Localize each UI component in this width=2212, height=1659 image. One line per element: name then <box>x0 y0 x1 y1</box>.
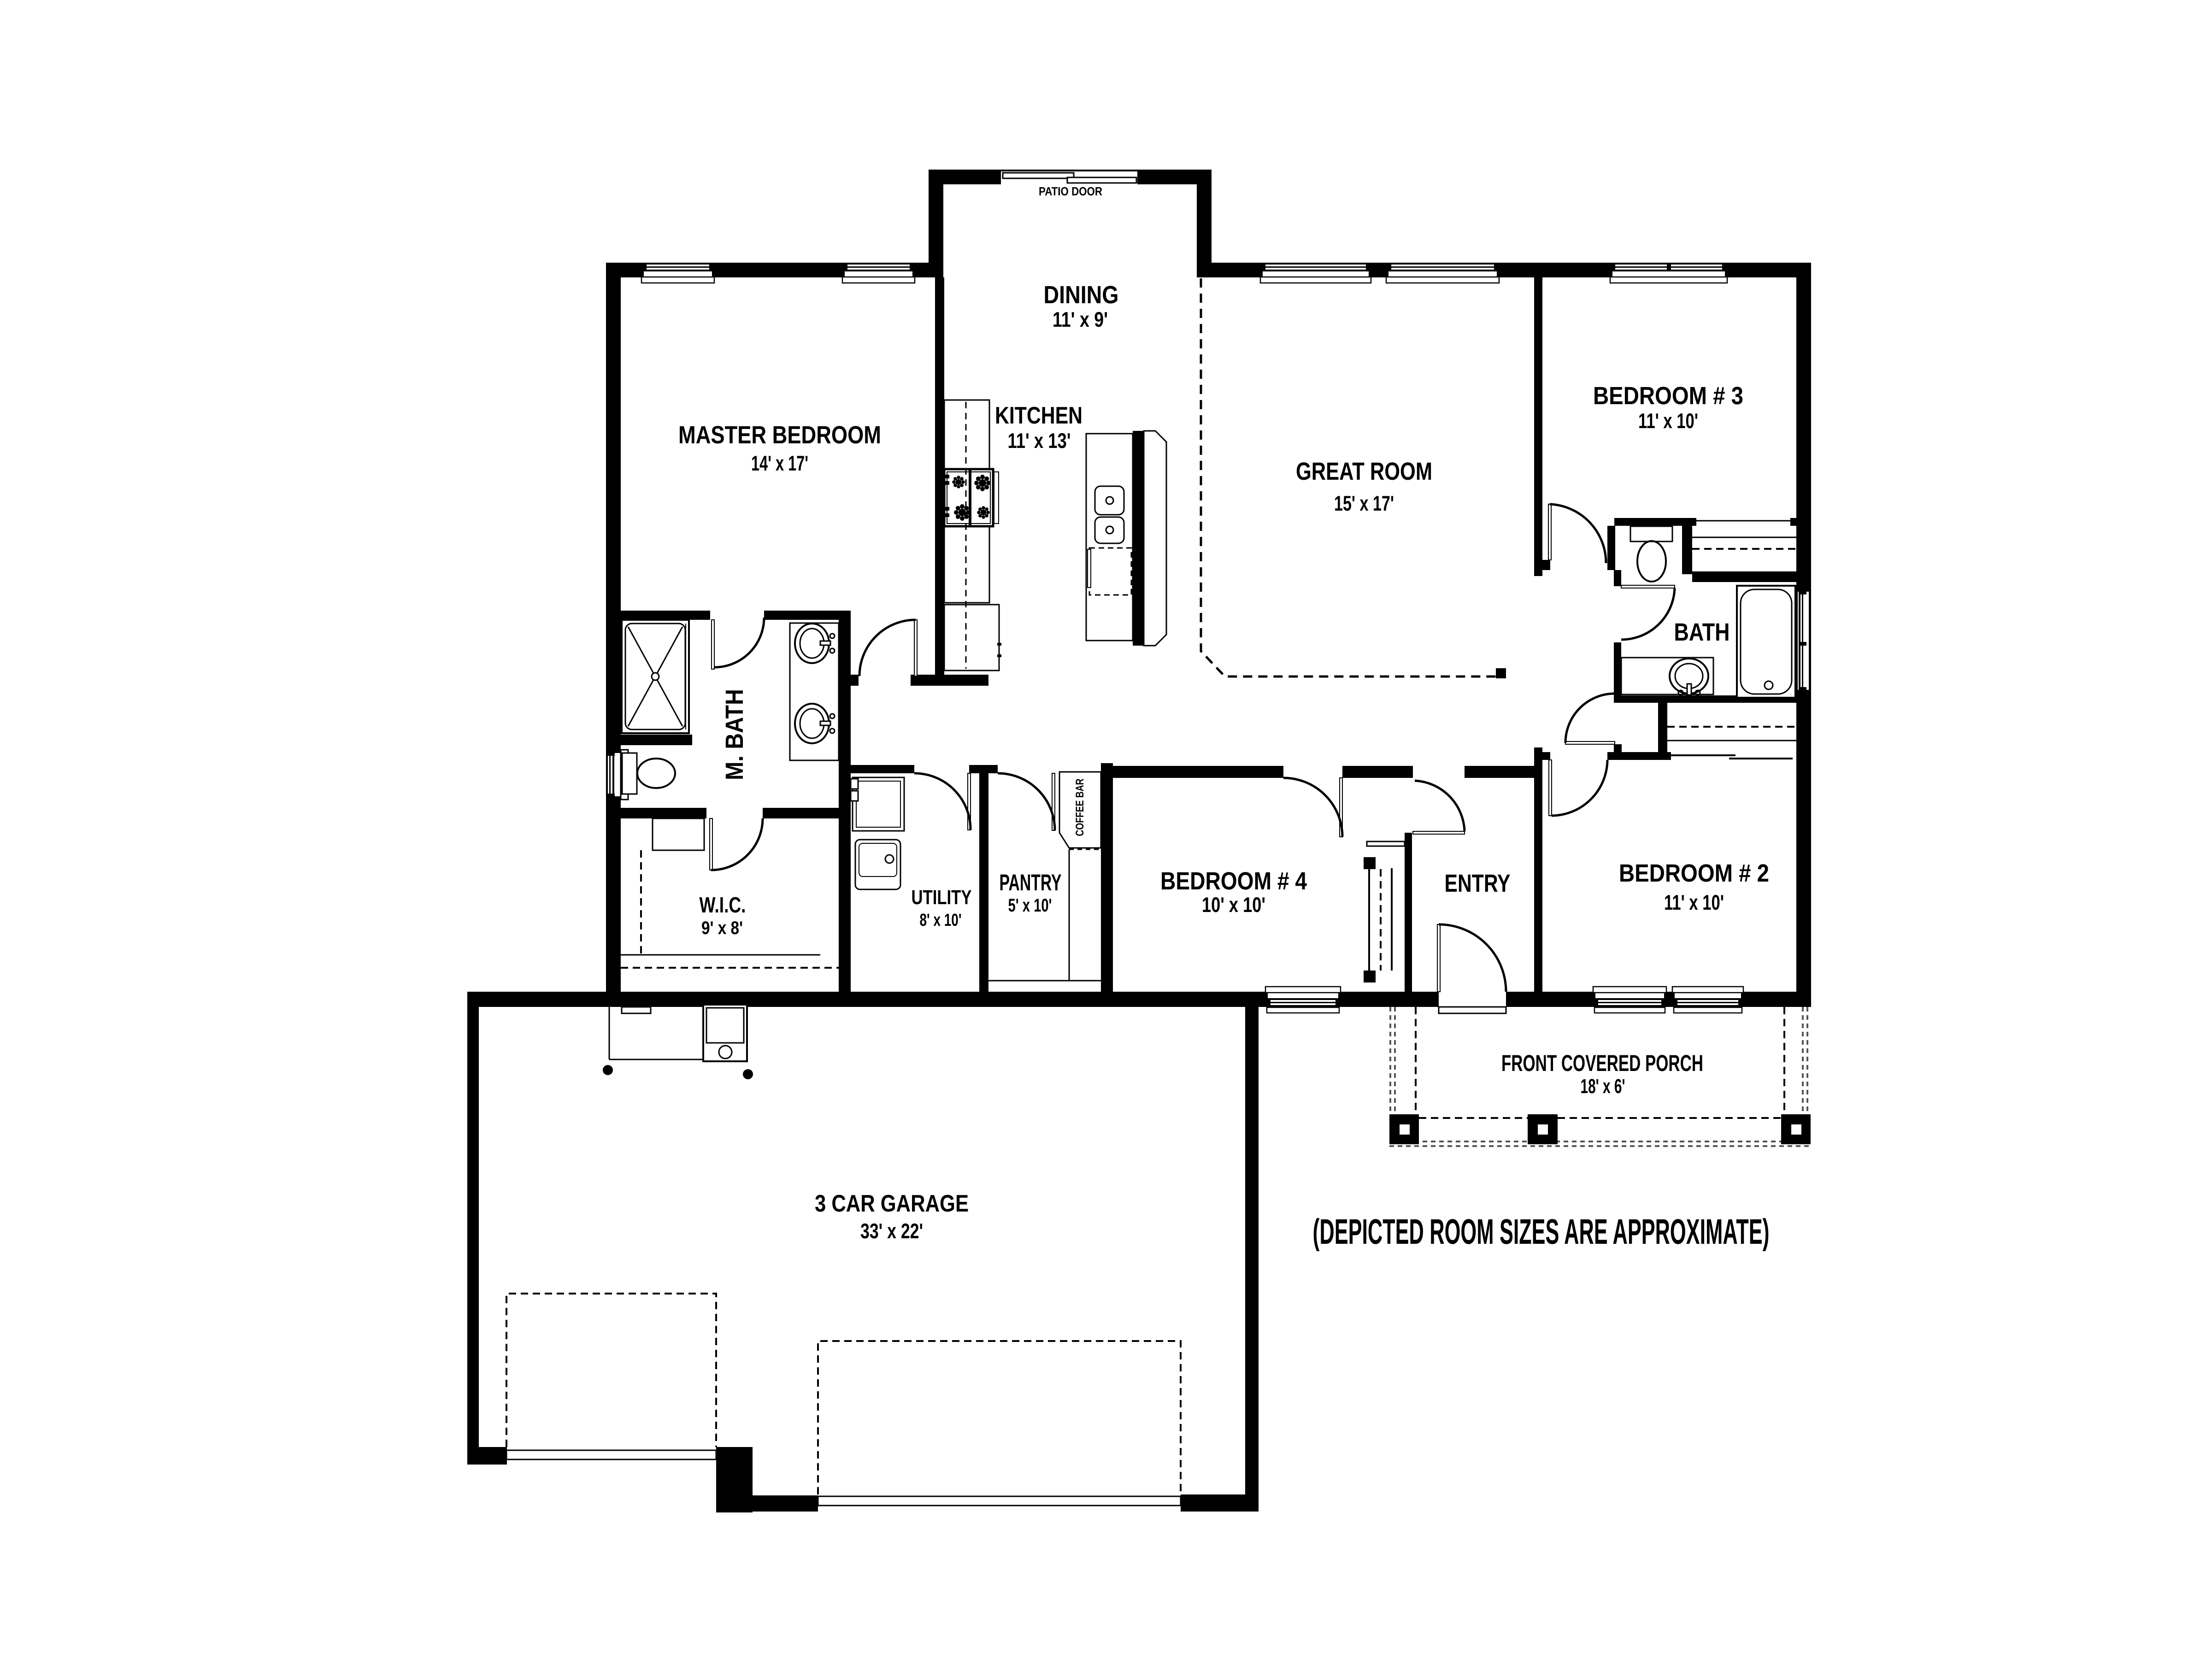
svg-text:18' x 6': 18' x 6' <box>1581 1075 1625 1098</box>
svg-text:BATH: BATH <box>1674 618 1730 646</box>
svg-text:MASTER BEDROOM: MASTER BEDROOM <box>678 421 881 449</box>
svg-text:14' x 17': 14' x 17' <box>751 451 808 475</box>
svg-text:BEDROOM # 4: BEDROOM # 4 <box>1160 867 1307 895</box>
svg-text:ENTRY: ENTRY <box>1445 870 1511 897</box>
svg-text:FRONT COVERED PORCH: FRONT COVERED PORCH <box>1501 1050 1703 1076</box>
svg-text:11' x 10': 11' x 10' <box>1664 890 1724 914</box>
svg-text:W.I.C.: W.I.C. <box>700 893 746 918</box>
svg-text:11' x 13': 11' x 13' <box>1008 429 1071 453</box>
svg-text:8' x 10': 8' x 10' <box>920 911 962 930</box>
svg-text:M. BATH: M. BATH <box>721 689 748 780</box>
svg-text:(DEPICTED ROOM SIZES ARE APPRO: (DEPICTED ROOM SIZES ARE APPROXIMATE) <box>1313 1212 1770 1252</box>
svg-text:33' x 22': 33' x 22' <box>860 1219 923 1243</box>
svg-text:DINING: DINING <box>1044 281 1119 309</box>
svg-text:11' x 9': 11' x 9' <box>1053 307 1108 331</box>
svg-text:5' x 10': 5' x 10' <box>1008 895 1052 916</box>
svg-text:3 CAR GARAGE: 3 CAR GARAGE <box>815 1190 969 1217</box>
svg-text:BEDROOM # 2: BEDROOM # 2 <box>1619 859 1769 887</box>
svg-text:15' x 17': 15' x 17' <box>1334 491 1394 515</box>
svg-text:10' x 10': 10' x 10' <box>1202 893 1265 917</box>
svg-text:PANTRY: PANTRY <box>1000 870 1062 895</box>
svg-text:GREAT ROOM: GREAT ROOM <box>1296 458 1432 485</box>
svg-text:KITCHEN: KITCHEN <box>995 402 1082 429</box>
svg-text:UTILITY: UTILITY <box>912 886 972 909</box>
svg-text:COFFEE BAR: COFFEE BAR <box>1074 779 1086 836</box>
svg-text:9' x 8': 9' x 8' <box>701 918 743 938</box>
svg-text:PATIO DOOR: PATIO DOOR <box>1039 184 1102 198</box>
svg-text:BEDROOM # 3: BEDROOM # 3 <box>1593 382 1743 410</box>
svg-text:11' x 10': 11' x 10' <box>1638 409 1698 433</box>
